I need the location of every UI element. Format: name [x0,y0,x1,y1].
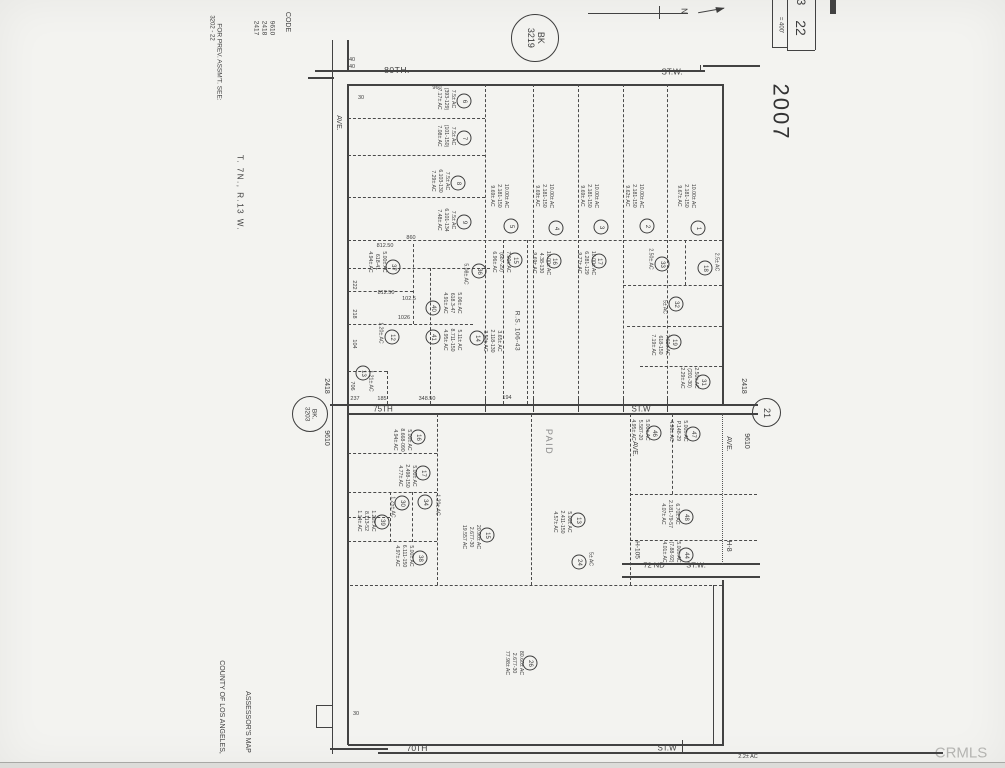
parcel-number-circle: 7 [457,131,472,146]
map-line [330,404,758,406]
township-range-label: T. 7N., R.13 W. [235,155,244,231]
parcel-acreage-note: 7.5± AC 6.101-134 7.48± AC [436,208,456,231]
parcel-acreage-note: 2.50± AC (201-30) 2.29± AC [679,367,699,388]
parcel-number: 48 [683,514,689,521]
map-line [588,13,688,14]
code-value: 9610 [268,21,275,35]
parcel-acreage-note: 1.20± AC [434,494,441,515]
map-line [348,453,437,454]
parcel-number: 2 [644,224,650,227]
map-line [772,0,773,47]
map-line [703,65,760,67]
code-value: 2417 [252,21,259,35]
parcel-acreage-note: 10.00± AC 2.181-150 9.67± AC [676,184,696,208]
parcel-acreage-note: 5± AC [661,300,668,314]
map-line [527,240,528,404]
parcel-acreage-note: 5.08± AC [462,263,469,284]
map-line [623,285,722,286]
map-line [348,118,485,119]
map-line [667,84,668,404]
parcel-number: 15 [512,257,518,264]
parcel-number: 1 [695,226,701,229]
dimension-label: 960 [432,85,441,91]
parcel-number-circle: 41 [426,330,441,345]
parcel-number: 40 [430,305,436,312]
map-line [722,580,724,746]
assessor-map-sheet: FOR PREV. ASSM'T. SEE: 3202 - 22 CODE 96… [0,0,1005,768]
parcel-number: 19 [671,339,677,346]
parcel-acreage-note: 5.00± AC 2.411-150 4.57± AC [552,511,572,534]
parcel-number-circle: 4 [549,221,564,236]
map-line [685,240,686,285]
parcel-acreage-note: 7.5± AC (393-129) 7.17± AC [436,88,456,111]
parcel-number-circle: 39 [375,515,390,530]
map-line [316,705,317,728]
district-label-left: H-105 [633,541,640,559]
dimension-label: 40 [349,64,355,70]
map-line [700,65,701,72]
parcel-number-circle: 3 [594,220,609,235]
parcel-number: 13 [360,370,366,377]
prev-assessment-ref: 3202 - 22 [208,15,215,40]
map-line [316,727,332,728]
tax-code-right-top: 2418 [739,378,747,394]
county-label: COUNTY OF LOS ANGELES, [217,660,225,754]
parcel-number: 17 [420,470,426,477]
parcel-number-circle: 1 [691,221,706,236]
parcel-number-circle: 8 [451,176,466,191]
parcel-acreage-note: 5.06± AC 618.3-47 4.91± AC [442,292,462,313]
map-line [378,752,943,754]
parcel-number-circle: 24 [572,555,587,570]
parcel-acreage-note: 1.20± AC [377,322,384,343]
map-line [622,576,760,578]
map-line [316,705,332,706]
parcel-number-circle: 15 [480,528,495,543]
map-line [348,84,722,86]
parcel-number: 44 [683,552,689,559]
map-line [348,492,437,493]
dimension-label: 102.5 [402,296,416,302]
dimension-label: 860 [406,235,415,241]
parcel-acreage-note: 10.00± AC 2.181-150 9.69± AC [489,184,509,208]
map-line [627,326,722,327]
parcel-number-circle: 34 [418,495,433,510]
parcel-number: 12 [389,334,395,341]
tax-code-left-top: 2418 [322,378,330,394]
avenue-label-left: AVE. [334,115,342,130]
parcel-number: 41 [430,334,436,341]
parcel-number: 16 [551,258,557,265]
parcel-acreage-note: 5.00± AC (7.88-92) 4.01± AC [661,541,681,562]
parcel-acreage-note: 2.50± AC [647,248,654,269]
parcel-number-circle: 37 [386,260,401,275]
map-line [348,197,485,198]
parcel-number-circle: 26 [523,656,538,671]
parcel-number: 4 [553,226,559,229]
parcel-number: 31 [700,379,706,386]
map-line [348,744,722,746]
parcel-number-circle: 6 [457,94,472,109]
avenue-label-right: AVE. [724,436,732,451]
parcel-number-circle: 36 [472,264,487,279]
map-line [722,84,724,405]
map-line [332,40,333,754]
map-line [348,324,473,325]
map-line [330,748,388,750]
map-line [533,84,534,404]
parcel-number-circle: 9 [457,215,472,230]
parcel-number: 15 [484,532,490,539]
parcel-number-circle: 48 [679,510,694,525]
parcel-number-circle: 18 [698,261,713,276]
parcel-number: 8 [455,181,461,184]
parcel-number: 3 [598,225,604,228]
map-line [348,541,437,542]
parcel-acreage-note: 7.5± AC 6.103-130 7.29± AC [430,169,450,192]
dimension-label: 218 [351,309,357,318]
map-line [413,244,414,324]
parcel-number-circle: 30 [395,496,410,511]
parcel-acreage-note: 2.5± AC [713,253,720,271]
parcel-acreage-note: 6.70± AC 2.181-79-57 4.07± AC [660,500,680,528]
parcel-number: 9 [461,220,467,223]
parcel-number: 33 [659,261,665,268]
parcel-acreage-note: 5.00± AC P.148-29 4.98± AC [668,420,688,441]
parcel-acreage-note: 10.00± AC 4.38-130 9.69± AC [531,251,551,275]
parcel-number-circle: 5 [504,219,519,234]
parcel-acreage-note: 5± AC [587,552,594,566]
parcel-number: 14 [474,335,480,342]
map-line [350,585,722,586]
map-line [308,77,334,79]
map-line [787,50,815,51]
map-line [348,240,722,241]
dimension-label: 30 [353,711,359,717]
parcel-number-circle: 12 [385,330,400,345]
map-line [722,414,723,564]
scale-label: = 400' [777,17,784,33]
page-circle-21-text: 21 [762,407,772,417]
book-circle-3219: BK 3219 [511,14,559,62]
code-label: CODE [283,12,291,32]
dimension-label: 2.2± AC [738,754,758,760]
map-line [830,0,836,14]
north-arrow-head-icon [715,5,725,13]
book-circle-3203: BK. 3203 [292,396,328,432]
dimension-label: 348.50 [419,396,436,402]
sheet-number: 22 [793,20,809,36]
parcel-number: 30 [399,500,405,507]
parcel-number: 38 [417,555,423,562]
parcel-acreage-note: 7.5± AC (101-150) 7.08± AC [436,125,456,148]
map-line [348,413,758,415]
parcel-acreage-note: 5.00± AC 8.668-090 4.94± AC [392,428,412,451]
parcel-acreage-note: 10.00± AC 6.281-129 9.77± AC [576,251,596,275]
parcel-number: 26 [527,660,533,667]
book-circle-3203-text: BK. 3203 [303,407,317,421]
tax-code-right-bottom: 9610 [742,433,750,449]
year-stamp: 2007 [768,84,793,141]
parcel-acreage-note: 5.00± AC 5.587-20 4.95± AC [630,419,650,440]
parcel-number-circle: 16 [411,430,426,445]
map-line [347,84,349,745]
dimension-label: 40 [349,57,355,63]
parcel-number-circle: 40 [426,301,441,316]
map-line [772,47,787,48]
parcel-number: 39 [379,519,385,526]
parcel-acreage-note: 10.00± AC 2.181-150 9.69± AC [534,184,554,208]
parcel-number: 36 [476,268,482,275]
map-line [485,84,486,404]
dimension-label: 30 [358,95,364,101]
parcel-number: 34 [422,499,428,506]
map-line [622,563,760,565]
parcel-acreage-note: 20.90± AC 2.677-30 19.557 AC [461,525,481,549]
map-line [815,0,816,50]
parcel-number: 47 [690,431,696,438]
parcel-number: 24 [576,559,582,566]
street-80th-suffix: ST.W. [662,67,683,76]
book-circle-3219-text: BK 3219 [525,28,545,48]
map-line [315,70,705,72]
parcel-acreage-note: 1.25± AC [389,496,396,517]
parcel-acreage-note: 7.00± AC (687-29) 6.96± AC [491,251,511,272]
parcel-number: 5 [508,224,514,227]
parcel-number-circle: 17 [416,466,431,481]
parcel-acreage-note: 7.60± AC 618-150 7.19± AC [650,334,670,355]
record-survey-ref: R.S. 106-43 [513,311,520,351]
map-line [348,155,485,156]
dimension-label: 104 [351,339,357,348]
parcel-number: 6 [461,99,467,102]
parcel-number-circle: 32 [669,297,684,312]
map-line [787,0,788,50]
dimension-label: 222 [351,280,357,289]
map-line [578,84,579,404]
dimension-label: 706 [349,381,355,390]
map-line [0,762,1005,764]
map-line [531,414,532,585]
scan-edge [0,763,1005,768]
sheet-number-partial: 3 [793,0,807,5]
assessors-map-label: ASSESSOR'S MAP [243,691,251,753]
parcel-number: 7 [461,136,467,139]
parcel-acreage-note: 1.20± AC 8.113-52 1.14± AC [356,510,376,531]
parcel-number: 13 [575,517,581,524]
parcel-acreage-note: 10.00± AC 2.181-150 9.69± AC [579,184,599,208]
map-line [630,540,757,541]
district-label-right: H-8 [724,540,732,551]
parcel-number-circle: 13 [571,513,586,528]
prev-assessment-note: FOR PREV. ASSM'T. SEE: [215,23,222,100]
map-line [682,740,683,753]
map-line [713,585,714,745]
parcel-number: 32 [673,301,679,308]
parcel-number: 16 [415,434,421,441]
parcel-number-circle: 38 [413,551,428,566]
map-line [387,371,388,404]
map-line [623,84,624,404]
dimension-label: 237 [350,396,359,402]
parcel-number: 46 [651,430,657,437]
avenue-label-mid: AVE. [630,441,638,456]
dimension-label: 194 [502,395,511,401]
parcel-acreage-note: 5.11± AC 8.711-150 4.95± AC [442,329,462,352]
parcel-acreage-note: 5.00± AC 618-41 4.94± AC [367,251,387,272]
parcel-number-circle: 2 [640,219,655,234]
parcel-acreage-note: 1.21± AC [367,370,374,391]
parcel-acreage-note: 10.00± AC 2.181-150 9.62± AC [624,184,644,208]
code-value: 2418 [260,21,267,35]
map-line [659,6,660,19]
dimension-label: 812.50 [378,290,395,296]
dimension-label: 1026 [398,315,410,321]
parcel-acreage-note: 80.60± AC 2.677-30 77.98± AC [504,651,524,675]
parcel-number-circle: 33 [655,257,670,272]
parcel-number: 37 [390,264,396,271]
parcel-number: 17 [596,258,602,265]
tax-code-left-bottom: 9610 [322,430,330,446]
parcel-acreage-note: 5.00± AC 2.498-150 4.77± AC [397,464,417,487]
parcel-acreage-note: 3.65± AC 2.118-130 3.50± AC [482,330,502,353]
map-line [630,494,757,495]
dimension-label: 185 [377,396,386,402]
paid-stamp: PAID [544,429,554,455]
dimension-label: 812.50 [377,243,394,249]
parcel-acreage-note: 5.00± AC 6.111-150 4.97± AC [394,545,414,568]
parcel-number: 18 [702,265,708,272]
map-line [412,492,413,542]
